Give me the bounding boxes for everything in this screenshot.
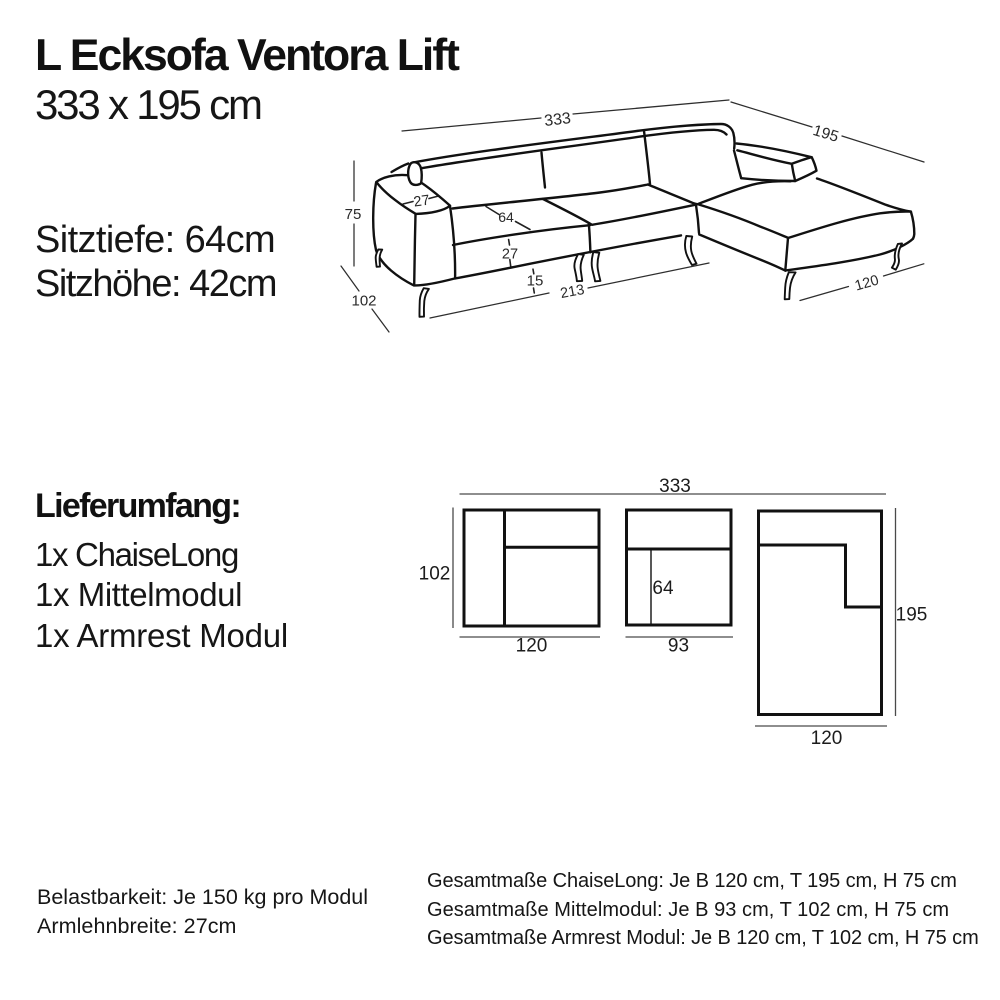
svg-text:195: 195 <box>896 605 928 626</box>
svg-text:120: 120 <box>516 636 548 657</box>
svg-text:213: 213 <box>559 282 586 302</box>
svg-text:64: 64 <box>652 578 674 599</box>
svg-text:27: 27 <box>413 192 431 210</box>
svg-text:102: 102 <box>419 564 451 585</box>
svg-text:27: 27 <box>502 246 518 262</box>
svg-text:195: 195 <box>811 122 841 146</box>
svg-text:120: 120 <box>811 728 843 749</box>
svg-text:93: 93 <box>668 636 689 657</box>
svg-text:15: 15 <box>527 273 544 290</box>
svg-text:64: 64 <box>498 209 514 225</box>
svg-text:120: 120 <box>853 272 881 294</box>
svg-text:333: 333 <box>659 476 691 497</box>
svg-text:75: 75 <box>345 206 362 223</box>
svg-text:333: 333 <box>543 110 572 130</box>
svg-text:102: 102 <box>351 293 376 310</box>
